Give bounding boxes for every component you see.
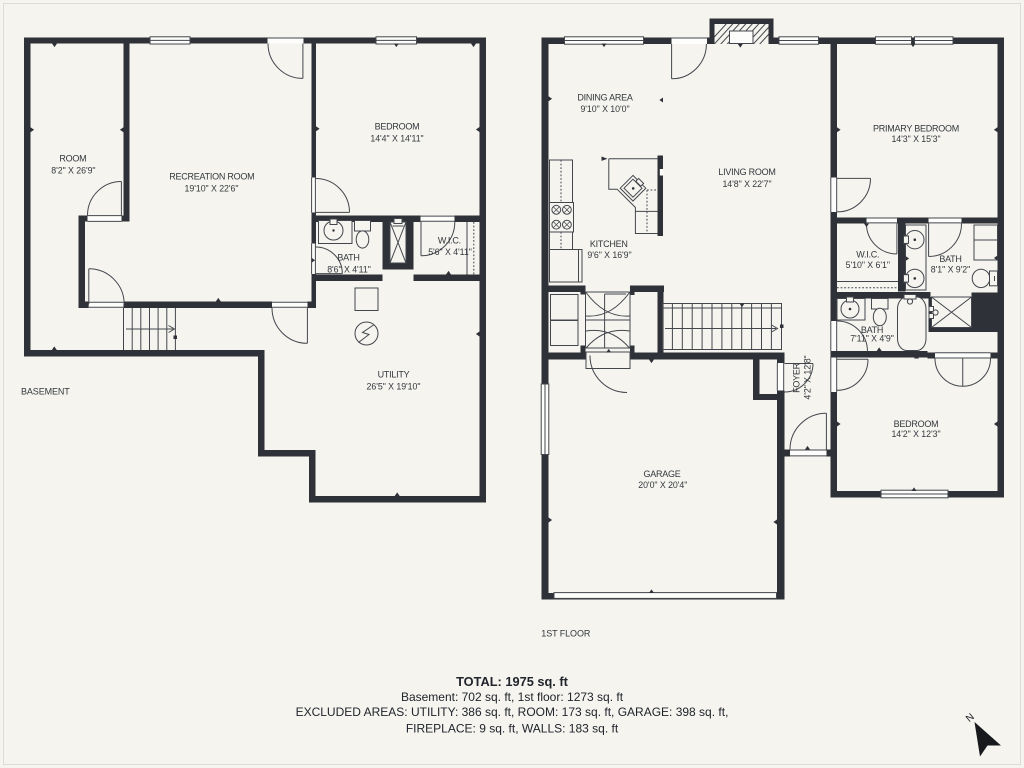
svg-text:Basement: 702 sq. ft, 1st floo: Basement: 702 sq. ft, 1st floor: 1273 sq… (401, 690, 624, 704)
svg-text:ROOM: ROOM (59, 154, 86, 164)
svg-text:14'8" X 22'7": 14'8" X 22'7" (722, 179, 771, 189)
svg-text:BEDROOM: BEDROOM (375, 121, 420, 131)
svg-text:FOYER: FOYER (792, 362, 802, 393)
svg-text:8'1" X 9'2": 8'1" X 9'2" (931, 265, 970, 275)
svg-text:5'10" X 6'1": 5'10" X 6'1" (846, 260, 890, 270)
svg-text:8'6" X 4'11": 8'6" X 4'11" (327, 265, 371, 275)
svg-text:19'10" X 22'6": 19'10" X 22'6" (185, 183, 239, 193)
svg-text:RECREATION ROOM: RECREATION ROOM (169, 171, 254, 181)
svg-text:20'0" X 20'4": 20'0" X 20'4" (638, 480, 687, 490)
svg-text:PRIMARY BEDROOM: PRIMARY BEDROOM (873, 123, 959, 133)
svg-text:14'4" X 14'11": 14'4" X 14'11" (370, 133, 423, 143)
svg-text:1ST FLOOR: 1ST FLOOR (541, 629, 591, 639)
svg-text:BEDROOM: BEDROOM (894, 419, 939, 429)
svg-text:BATH: BATH (337, 253, 359, 263)
svg-text:EXCLUDED AREAS: UTILITY: 386 s: EXCLUDED AREAS: UTILITY: 386 sq. ft, ROO… (296, 705, 729, 719)
svg-text:9'10" X 10'0": 9'10" X 10'0" (580, 104, 629, 114)
svg-text:W.I.C.: W.I.C. (438, 236, 461, 246)
svg-text:7'11" X 4'9": 7'11" X 4'9" (850, 334, 894, 344)
svg-text:KITCHEN: KITCHEN (590, 239, 628, 249)
svg-text:14'2" X 12'3": 14'2" X 12'3" (891, 429, 940, 439)
svg-text:BASEMENT: BASEMENT (21, 386, 70, 396)
svg-text:4'2" X 12'8": 4'2" X 12'8" (803, 355, 813, 399)
svg-text:FIREPLACE: 9 sq. ft, WALLS: 18: FIREPLACE: 9 sq. ft, WALLS: 183 sq. ft (406, 722, 619, 736)
svg-text:DINING AREA: DINING AREA (577, 93, 633, 103)
svg-text:TOTAL: 1975 sq. ft: TOTAL: 1975 sq. ft (456, 674, 569, 689)
svg-text:GARAGE: GARAGE (643, 469, 680, 479)
svg-text:26'5" X 19'10": 26'5" X 19'10" (367, 381, 421, 391)
svg-text:LIVING ROOM: LIVING ROOM (718, 167, 775, 177)
svg-text:UTILITY: UTILITY (378, 369, 410, 379)
svg-text:BATH: BATH (939, 254, 961, 264)
svg-text:5'6" X 4'11": 5'6" X 4'11" (428, 247, 472, 257)
svg-text:14'3" X 15'3": 14'3" X 15'3" (891, 134, 940, 144)
svg-text:8'2" X 26'9": 8'2" X 26'9" (51, 166, 95, 176)
svg-text:W.I.C.: W.I.C. (856, 250, 879, 260)
svg-text:9'6" X 16'9": 9'6" X 16'9" (587, 250, 631, 260)
